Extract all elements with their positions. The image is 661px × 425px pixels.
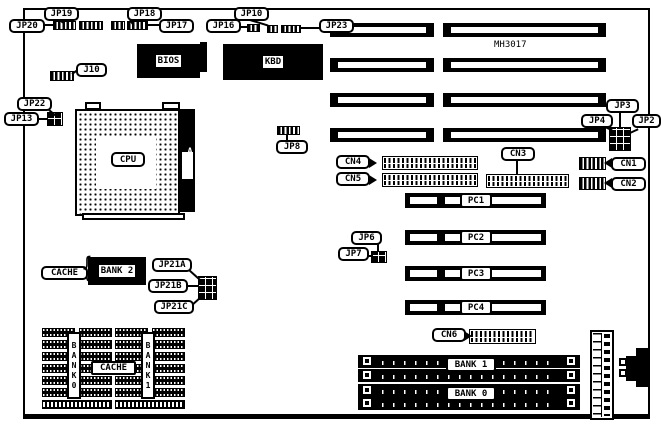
- cn5-callout: CN5: [336, 172, 370, 186]
- cpu-socket-tab: [162, 102, 180, 110]
- callout-line: [240, 26, 248, 28]
- motherboard-diagram: MH3017 JP19 JP20 JP18 JP17 JP10 JP16 JP2…: [0, 0, 661, 425]
- callout-line: [187, 285, 199, 287]
- jp13-callout: JP13: [4, 112, 39, 126]
- pci-stripe: [410, 304, 437, 311]
- cn3-connector: [486, 174, 569, 188]
- dip-chip: [79, 352, 112, 361]
- j10-callout: J10: [76, 63, 107, 77]
- callout-line: [300, 27, 320, 29]
- dip-chip: [152, 352, 185, 361]
- din-mount-notch: [619, 369, 627, 377]
- small-chip: [200, 42, 207, 72]
- power-connector-pins: [604, 334, 610, 416]
- jp21b-callout: JP21B: [148, 279, 188, 293]
- cn6-callout: CN6: [432, 328, 466, 342]
- callout-line: [516, 160, 518, 175]
- keyboard-din-connector: [626, 356, 649, 381]
- dip-chip: [152, 388, 185, 397]
- callout-line: [377, 244, 379, 252]
- cn3-callout: CN3: [501, 147, 535, 161]
- cpu-socket-bottom-bar: [82, 213, 185, 220]
- board-part-number: MH3017: [494, 40, 564, 50]
- jp10-jumper-header: [267, 25, 278, 33]
- callout-line: [38, 118, 48, 120]
- pci-stripe: [410, 197, 437, 204]
- jp19-callout: JP19: [44, 7, 79, 21]
- callout-line: [619, 112, 621, 128]
- pci-stripe: [410, 270, 437, 277]
- dip-chip: [79, 376, 112, 385]
- jp18-callout: JP18: [127, 7, 162, 21]
- cn6-connector: [469, 329, 536, 344]
- simm-latch: [567, 386, 575, 394]
- isa-slot-2-long: [443, 58, 606, 72]
- din-mount-notch: [619, 358, 627, 366]
- isa-slot-3-long: [443, 93, 606, 107]
- simm-latch: [363, 386, 371, 394]
- jp8-jumper-header: [277, 126, 300, 135]
- jp16-jumper-header: [247, 24, 260, 32]
- simm-latch: [363, 399, 371, 407]
- cn5-connector: [382, 173, 478, 187]
- jp2-jp3-jp4-jumper-block: [609, 127, 631, 151]
- jp7-jumper-block: [371, 251, 387, 263]
- power-connector-pins: [593, 333, 602, 417]
- isa-slot-2-short: [330, 58, 434, 72]
- kbd-chip-label: KBD: [263, 56, 283, 68]
- callout-line: [45, 24, 53, 26]
- cache-sram-label: CACHE: [91, 361, 136, 375]
- bank0-vertical-label: BANK0: [67, 332, 81, 399]
- isa-slot-4-short: [330, 128, 434, 142]
- jp21a-callout: JP21A: [152, 258, 192, 272]
- dip-chip: [152, 376, 185, 385]
- jp23-callout: JP23: [319, 19, 354, 33]
- simm-latch: [363, 357, 371, 365]
- simm-latch: [567, 399, 575, 407]
- cn1-connector: [579, 157, 606, 170]
- cn2-connector: [579, 177, 606, 190]
- isa-slot-3-short: [330, 93, 434, 107]
- jp17-callout: JP17: [159, 19, 194, 33]
- pci-slot-label-pc4: PC4: [460, 300, 492, 315]
- bios-chip: BIOS: [137, 44, 200, 78]
- jp23-jumper-header: [281, 25, 301, 33]
- jp22-callout: JP22: [17, 97, 52, 111]
- power-connector: [590, 330, 614, 420]
- cache-bank2-chip: BANK 2: [88, 257, 146, 285]
- simm-bank0-label: BANK 0: [446, 386, 496, 401]
- keyboard-controller-chip: KBD: [223, 44, 323, 80]
- dip-chip-strip: [115, 400, 185, 409]
- pci-stripe: [410, 234, 437, 241]
- jp20-jumper-header: [79, 21, 103, 30]
- isa-slot-4-long: [443, 128, 606, 142]
- dip-chip: [152, 340, 185, 349]
- jp7-callout: JP7: [338, 247, 369, 261]
- bios-chip-label: BIOS: [156, 55, 182, 67]
- bank2-label: BANK 2: [99, 265, 136, 277]
- bank1-vertical-label: BANK1: [141, 332, 155, 399]
- cn2-callout: CN2: [611, 177, 646, 191]
- cache-brace: {: [81, 253, 93, 283]
- simm-latch: [567, 357, 575, 365]
- jp16-callout: JP16: [206, 19, 241, 33]
- dip-chip: [79, 340, 112, 349]
- cpu-socket-tab: [85, 102, 101, 110]
- isa-slot-1-long: [443, 23, 606, 37]
- jp4-callout: JP4: [581, 114, 613, 128]
- cn1-callout: CN1: [611, 157, 646, 171]
- callout-pointer: [369, 158, 377, 168]
- callout-pointer: [369, 175, 377, 185]
- cn4-callout: CN4: [336, 155, 370, 169]
- dip-chip: [79, 388, 112, 397]
- simm-bank1-label: BANK 1: [446, 357, 496, 372]
- simm-latch: [363, 371, 371, 379]
- jp3-callout: JP3: [606, 99, 639, 113]
- jp2-callout: JP2: [632, 114, 661, 128]
- pci-slot-label-pc3: PC3: [460, 266, 492, 281]
- cpu-label: CPU: [111, 152, 145, 167]
- jp18-jumper-header: [111, 21, 125, 30]
- cn4-connector: [382, 156, 478, 170]
- jp6-callout: JP6: [351, 231, 382, 245]
- pci-slot-label-pc1: PC1: [460, 193, 492, 208]
- jp10-callout: JP10: [234, 7, 269, 21]
- dip-chip-strip: [42, 400, 112, 409]
- jp21c-callout: JP21C: [154, 300, 194, 314]
- jp8-callout: JP8: [276, 140, 308, 154]
- dip-chip: [152, 328, 185, 337]
- dip-chip: [79, 328, 112, 337]
- amp-regulator-window: [182, 152, 193, 179]
- pci-slot-label-pc2: PC2: [460, 230, 492, 245]
- dip-chip: [152, 364, 185, 373]
- keyboard-din-connector: [636, 379, 649, 387]
- simm-latch: [567, 371, 575, 379]
- jp20-callout: JP20: [9, 19, 45, 33]
